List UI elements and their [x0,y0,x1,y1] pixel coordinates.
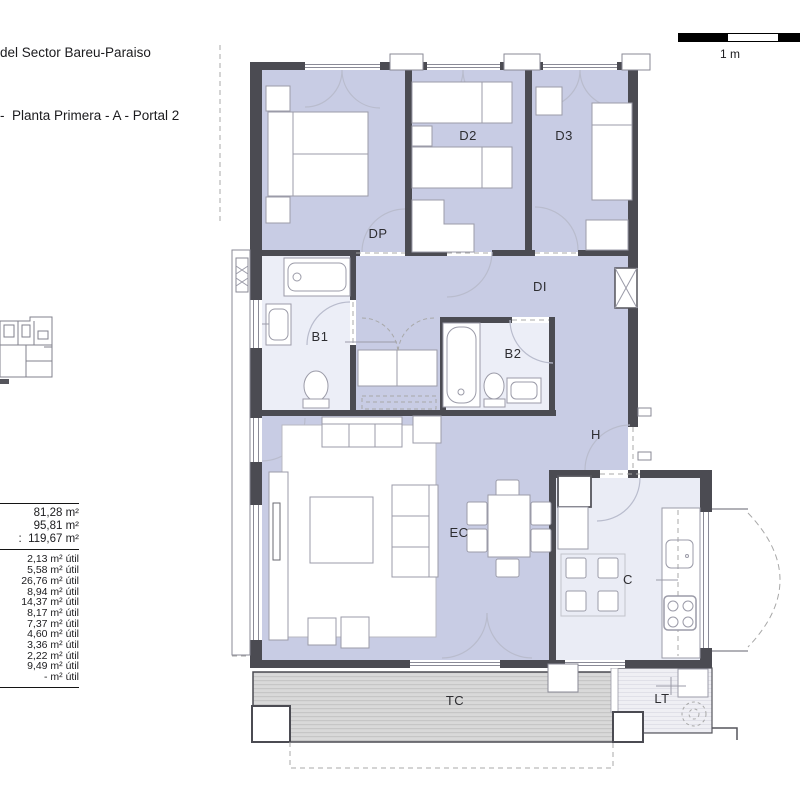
terrace-step [548,664,578,692]
desk [586,220,628,250]
sofa [322,417,402,447]
nightstand [412,126,432,146]
fridge [558,476,591,507]
shaft [615,268,637,308]
dining-table [488,495,530,557]
window-d2 [427,62,500,70]
label-d2: D2 [459,128,477,143]
nightstand [266,197,290,223]
pillar [252,706,290,742]
room-h [549,410,628,470]
label-di: DI [533,279,547,294]
label-b1: B1 [312,329,329,344]
label-c: C [623,572,633,587]
label-lt: LT [654,691,669,706]
tv [273,503,280,560]
window-dp [305,62,380,70]
pillar [613,712,643,742]
chair [566,591,586,611]
chair [496,559,519,577]
side-table [413,416,441,443]
balcony-arc-dashed [748,513,780,647]
terrace-frame [611,668,618,712]
cabinet [558,507,588,549]
label-b2: B2 [505,346,522,361]
counter [662,508,700,658]
nightstand [266,86,290,111]
toilet [304,371,328,401]
toilet [484,373,504,399]
label-ec: EC [449,525,468,540]
window-ec-terrace [410,660,500,668]
lt-step [712,728,737,740]
chair [531,529,551,552]
window-ec-tall [250,505,262,640]
chair [566,558,586,578]
single-bed [592,103,632,200]
pouf [341,617,369,648]
window-c-right [700,512,712,648]
chair [467,502,487,525]
room-di [412,256,628,317]
bathtub [284,258,350,296]
window-b1 [250,300,262,348]
chair [467,529,487,552]
balcony-bracket [712,509,748,651]
window-d3 [543,62,617,70]
closet [536,87,562,115]
terraces [252,668,737,768]
terrace-projection-dashed [290,742,613,768]
sofa [392,485,438,577]
entry-frame [638,452,651,460]
washing-machine [678,669,708,697]
sink [266,304,291,345]
chair [531,502,551,525]
coffee-table [310,497,373,563]
floor-plan-svg: DP D2 D3 B1 B2 DI H EC C TC LT [0,0,800,800]
label-h: H [591,427,601,442]
bathtub [443,323,480,407]
entry-frame [638,408,651,416]
chair [598,558,618,578]
single-bed [412,147,512,188]
label-d3: D3 [555,128,573,143]
single-bed [412,82,512,123]
window-ec-door [250,418,262,462]
pouf [308,618,336,645]
left-sill [232,250,250,655]
floorplan-page: del Sector Bareu-Paraiso - Planta Primer… [0,0,800,800]
label-dp: DP [368,226,387,241]
label-tc: TC [446,693,464,708]
chair [598,591,618,611]
shutter-box [236,258,248,292]
